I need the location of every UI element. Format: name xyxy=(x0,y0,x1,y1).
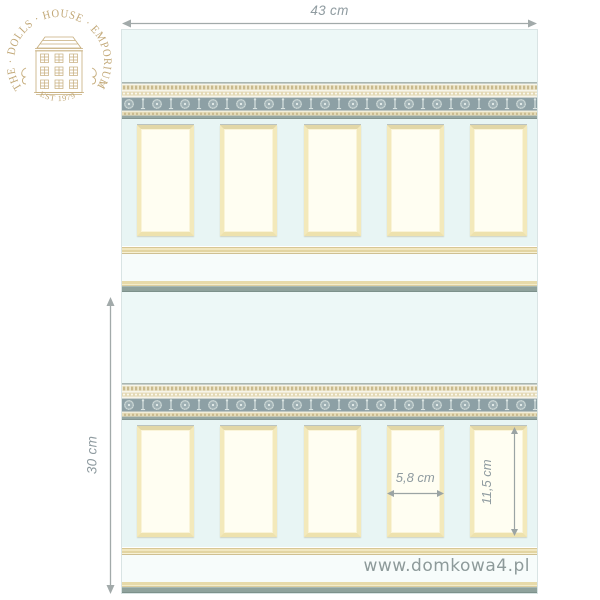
wallpaper-sheet: 5,8 cm 11,5 cm xyxy=(122,30,537,593)
logo-est-text: EST 1979 xyxy=(39,90,77,104)
baseboard xyxy=(122,582,537,593)
skirting-area xyxy=(122,254,537,281)
sheet-height-label: 30 cm xyxy=(85,436,100,474)
wainscot-panel xyxy=(137,426,194,537)
frieze-border xyxy=(122,82,537,119)
product-image-canvas: THE · DOLLS · HOUSE · EMPORIUM EST 1979 … xyxy=(0,0,600,600)
wainscot-panel xyxy=(304,125,361,236)
dado-panel-row: 5,8 cm 11,5 cm xyxy=(122,420,537,547)
panel-width-arrow xyxy=(387,488,444,499)
sheet-height-arrow xyxy=(104,297,117,594)
wainscot-panel xyxy=(220,125,277,236)
panel-height-arrow xyxy=(509,427,520,536)
sheet-width-label: 43 cm xyxy=(122,3,537,18)
skirting-area: www.domkowa4.pl xyxy=(122,555,537,582)
wainscot-panel-with-width-dim: 5,8 cm xyxy=(387,426,444,537)
wallpaper-repeat-2: 5,8 cm 11,5 cm xyxy=(122,292,537,593)
wall-area xyxy=(122,30,537,82)
frieze-border xyxy=(122,383,537,420)
baseboard xyxy=(122,281,537,292)
wainscot-panel xyxy=(220,426,277,537)
sheet-width-arrow xyxy=(122,17,537,30)
svg-text:EST 1979: EST 1979 xyxy=(39,90,77,104)
dolls-house-emporium-logo: THE · DOLLS · HOUSE · EMPORIUM EST 1979 xyxy=(6,6,112,118)
panel-height-label: 11,5 cm xyxy=(479,459,494,504)
logo-house-icon xyxy=(22,37,105,95)
wainscot-panel xyxy=(387,125,444,236)
wainscot-panel-with-height-dim: 11,5 cm xyxy=(470,426,527,537)
chair-rail xyxy=(122,246,537,254)
wall-area xyxy=(122,292,537,383)
chair-rail xyxy=(122,547,537,555)
wainscot-panel xyxy=(470,125,527,236)
dado-panel-row xyxy=(122,119,537,246)
panel-width-label: 5,8 cm xyxy=(383,470,448,485)
wainscot-panel xyxy=(137,125,194,236)
watermark-text: www.domkowa4.pl xyxy=(363,556,530,576)
wainscot-panel xyxy=(304,426,361,537)
wallpaper-repeat-1 xyxy=(122,30,537,292)
